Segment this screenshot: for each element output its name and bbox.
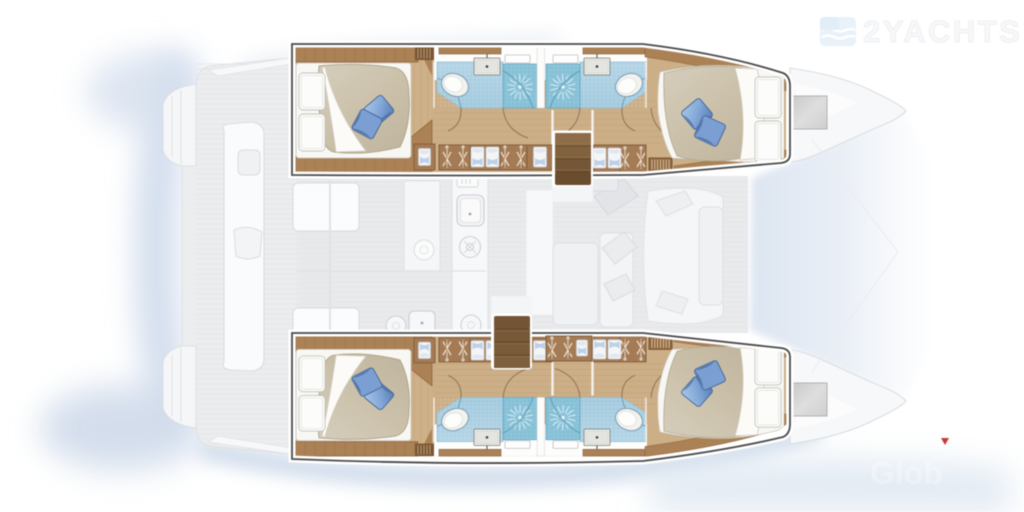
svg-text:2YACHTS: 2YACHTS: [863, 14, 1022, 49]
svg-text:Glob: Glob: [870, 455, 943, 491]
